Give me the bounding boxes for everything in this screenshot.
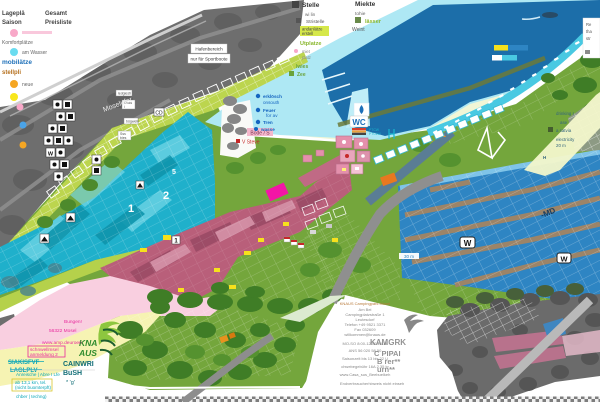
- svg-text:W: W: [560, 255, 568, 264]
- svg-text:Gesamt: Gesamt: [45, 11, 67, 17]
- svg-text:Preisliste: Preisliste: [45, 20, 72, 26]
- svg-text:www.amp.deuroen: www.amp.deuroen: [42, 340, 82, 346]
- svg-text:Weint: Weint: [352, 27, 365, 33]
- svg-text:1: 1: [128, 203, 134, 215]
- svg-text:Miekte: Miekte: [355, 1, 376, 8]
- svg-text:neue: neue: [22, 82, 33, 88]
- svg-text:Zee: Zee: [297, 72, 306, 78]
- svg-text:WC: WC: [352, 118, 366, 127]
- svg-text:30 m: 30 m: [404, 254, 414, 259]
- svg-text:Endverbraucherhinweis nicht ei: Endverbraucherhinweis nicht einseh: [340, 381, 404, 386]
- svg-text:wasse: wasse: [260, 127, 275, 132]
- svg-text:electricity: electricity: [556, 137, 575, 142]
- svg-text:CD: CD: [155, 111, 163, 117]
- svg-text:erklösch: erklösch: [263, 94, 282, 99]
- svg-text:BuSH: BuSH: [63, 370, 82, 377]
- svg-text:Lageplä: Lageplä: [2, 11, 25, 17]
- svg-text:ase: ase: [560, 120, 568, 125]
- svg-text:2: 2: [163, 190, 169, 202]
- svg-text:willkommen@knaus.de: willkommen@knaus.de: [344, 332, 386, 337]
- svg-text:wi lin: wi lin: [305, 12, 316, 17]
- svg-text:* 'g': * 'g': [66, 380, 75, 386]
- svg-text:drinking r: drinking r: [556, 111, 575, 116]
- svg-text:Utplatze: Utplatze: [300, 41, 321, 47]
- svg-text:lwies: lwies: [296, 64, 308, 70]
- svg-text:Hafenbereich: Hafenbereich: [195, 47, 223, 52]
- svg-text:5: 5: [172, 169, 176, 176]
- svg-text:W: W: [464, 239, 472, 248]
- svg-text:W: W: [48, 152, 54, 158]
- svg-text:miet: miet: [302, 49, 311, 54]
- svg-text:erstell: erstell: [302, 31, 313, 36]
- svg-text:Saison: Saison: [2, 20, 22, 26]
- svg-text:lässer: lässer: [365, 19, 382, 25]
- svg-text:KNA: KNA: [79, 338, 97, 348]
- svg-text:PTCLW: PTCLW: [369, 132, 381, 136]
- svg-text:CAINWRI: CAINWRI: [63, 361, 94, 368]
- svg-text:KNAUS Campingpark Mosel: KNAUS Campingpark Mosel: [340, 301, 391, 306]
- svg-text:KAMGRK: KAMGRK: [370, 338, 406, 347]
- svg-text:platz: platz: [302, 55, 311, 60]
- svg-text:(nicht buomterpft): (nicht buomterpft): [15, 385, 51, 390]
- svg-text:Stristelle: Stristelle: [306, 19, 325, 25]
- svg-text:H: H: [543, 155, 546, 160]
- svg-text:V Steve: V Steve: [242, 140, 260, 146]
- svg-text:anmeldung 2: anmeldung 2: [30, 352, 58, 358]
- svg-text:bies: bies: [120, 136, 127, 140]
- svg-text:Tren: Tren: [263, 120, 273, 125]
- svg-text:ledgiesti: ledgiesti: [118, 92, 131, 96]
- svg-text:20 m: 20 m: [556, 143, 566, 148]
- svg-text:str: str: [586, 36, 591, 41]
- svg-text:mobilätze: mobilätze: [2, 59, 32, 66]
- svg-text:chber | techng): chber | techng): [16, 394, 47, 399]
- svg-text:AUS: AUS: [78, 348, 97, 358]
- svg-text:Komfortplätze: Komfortplätze: [2, 40, 33, 46]
- svg-text:tha: tha: [586, 29, 592, 34]
- svg-text:stellpli: stellpli: [2, 70, 21, 76]
- svg-text:Stelle: Stelle: [302, 2, 320, 9]
- svg-text:Bungen!: Bungen!: [64, 319, 82, 325]
- svg-text:SIAKISFVF: SIAKISFVF: [8, 360, 40, 366]
- svg-text:nur für Sportboote: nur für Sportboote: [190, 57, 227, 62]
- svg-text:a satvia: a satvia: [556, 128, 572, 133]
- svg-text:am Wasser: am Wasser: [22, 50, 47, 56]
- svg-text:56322 Mosel: 56322 Mosel: [49, 328, 76, 334]
- svg-text:Re: Re: [586, 22, 592, 27]
- svg-text:onsouth: onsouth: [263, 100, 280, 105]
- svg-text:urn**: urn**: [377, 365, 395, 374]
- svg-text:bügwelk: bügwelk: [126, 120, 139, 124]
- svg-text:tohie: tohie: [355, 11, 366, 17]
- svg-text:for av: for av: [266, 113, 278, 118]
- svg-text:Anreische | Abre I Lfe: Anreische | Abre I Lfe: [16, 372, 60, 377]
